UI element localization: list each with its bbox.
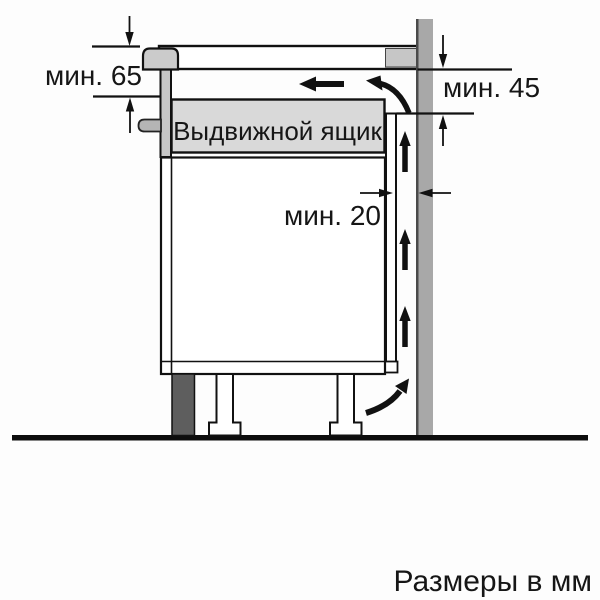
units-note: Размеры в мм xyxy=(393,565,592,598)
worktop xyxy=(159,46,418,69)
mounting-clip xyxy=(139,120,162,132)
rear-vent-panel xyxy=(386,114,396,363)
dim65-label: мин. 65 xyxy=(45,60,142,91)
dim20-label: мин. 20 xyxy=(284,200,381,231)
hob-profile xyxy=(143,49,178,70)
installation-diagram: Выдвижной ящик мин. 65 мин. 45 xyxy=(0,0,600,600)
diagram-svg: Выдвижной ящик мин. 65 мин. 45 xyxy=(0,0,600,600)
cabinet-body xyxy=(161,158,385,375)
wall-edge-line xyxy=(416,19,419,436)
wall xyxy=(417,19,433,436)
hob-housing xyxy=(161,69,172,157)
floor-line xyxy=(12,435,588,441)
dim45-label: мин. 45 xyxy=(443,72,540,103)
drawer-label: Выдвижной ящик xyxy=(173,116,382,146)
worktop-end-block xyxy=(386,49,417,68)
plinth xyxy=(172,374,195,436)
